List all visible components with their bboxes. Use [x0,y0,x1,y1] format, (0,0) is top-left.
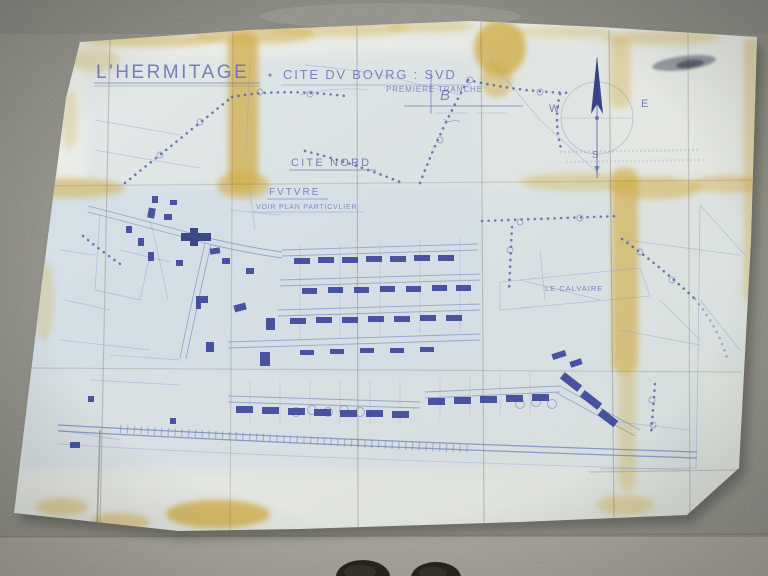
photo-of-folded-map: W E S L'HERMITAGE CITE DV BOVRG : SVD PR… [0,0,768,576]
photo-vignette [0,0,768,576]
